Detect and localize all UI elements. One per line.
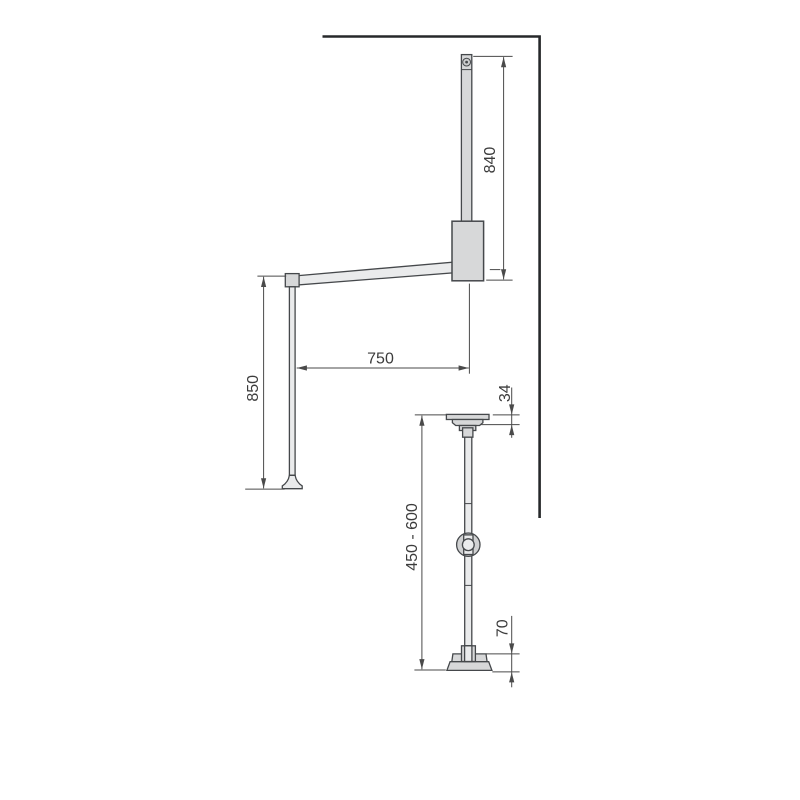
dimension-34: 34 [481, 384, 519, 438]
dimension-450-600: 450 - 600 [404, 415, 447, 670]
wardrobe-lift-diagram: 840 750 850 450 - 600 [0, 0, 800, 800]
plate-nut [463, 428, 473, 437]
dim-34-label: 34 [497, 384, 514, 402]
ceiling-plate [446, 414, 489, 419]
mount-bracket-box [452, 221, 484, 281]
dimension-70: 70 [486, 616, 520, 687]
screw-center-dot [465, 61, 468, 64]
dim-840-label: 840 [482, 147, 499, 174]
adjustable-column-assembly [446, 414, 492, 670]
dim-850-label: 850 [245, 375, 262, 402]
swivel-arm [299, 262, 453, 285]
hanging-bar [461, 55, 471, 222]
arm-joint [285, 274, 299, 287]
technical-drawing-canvas: 840 750 850 450 - 600 [0, 0, 800, 800]
dimension-750: 750 [297, 284, 470, 374]
dim-750-label: 750 [367, 350, 394, 367]
dimension-850: 850 [245, 276, 286, 489]
foot-nut-core [465, 646, 472, 662]
foot-base [447, 662, 492, 671]
dim-70-label: 70 [494, 619, 511, 637]
handle-knob [282, 475, 302, 488]
adjuster-knob-inner-circle [462, 539, 474, 551]
handle-rod [289, 287, 295, 476]
plate-cup [452, 420, 483, 426]
dim-450-600-label: 450 - 600 [404, 503, 421, 571]
